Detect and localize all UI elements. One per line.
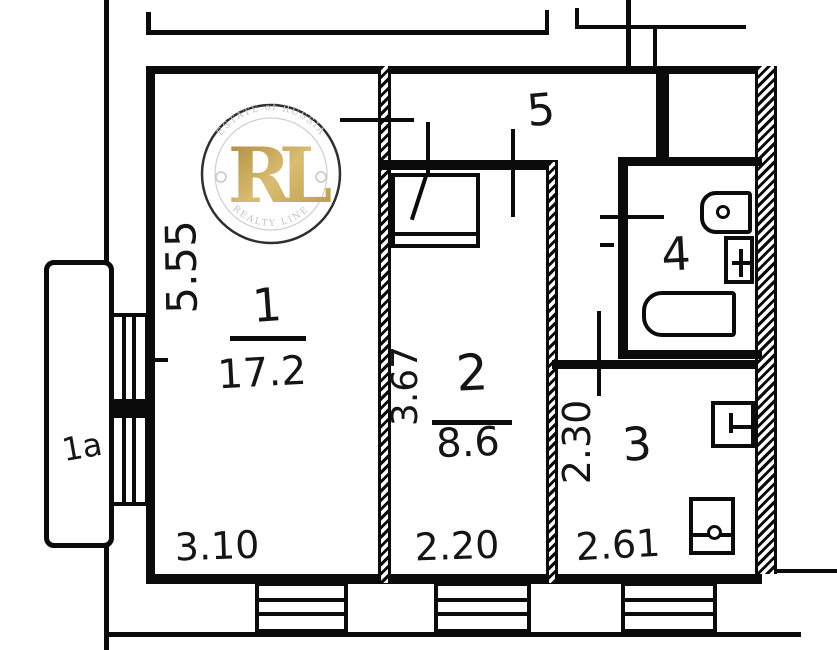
boundary-top-tick-right xyxy=(545,10,549,34)
window-glazing xyxy=(625,612,713,616)
room3-top-wall xyxy=(552,360,758,369)
watermark-monogram: RL xyxy=(228,131,331,220)
shaft-top-line xyxy=(575,25,746,29)
watermark-logo: ESTATE of RUSSIA REALTY LINE RL xyxy=(198,101,344,247)
window-glazing xyxy=(259,598,344,602)
window-glazing xyxy=(259,612,344,616)
room1-number: 1 xyxy=(251,281,283,329)
window-left-2 xyxy=(110,414,149,506)
stove-burner-icon xyxy=(729,413,733,433)
tick-bathroom-small xyxy=(600,243,614,247)
tick-corridor-entry xyxy=(340,118,414,122)
balcony-number: 1a xyxy=(60,428,105,466)
room2-top-wall xyxy=(378,160,558,170)
kitchen-sink xyxy=(689,497,735,555)
apartment-top-wall xyxy=(148,66,774,74)
tick-bathroom-door xyxy=(600,215,664,219)
bathroom-sink xyxy=(724,236,754,284)
room3-width-dim: 2.61 xyxy=(575,524,661,566)
window-bottom-3 xyxy=(621,582,717,633)
bathtub xyxy=(642,291,736,337)
window-left-1 xyxy=(110,313,149,403)
window-bottom-1 xyxy=(255,582,348,633)
window-glazing xyxy=(438,598,527,602)
window-glazing xyxy=(625,598,713,602)
window-glazing xyxy=(122,418,126,502)
room1-width-dim: 3.10 xyxy=(174,526,260,567)
bathroom-left-wall xyxy=(618,157,628,359)
room2-number: 2 xyxy=(455,347,489,399)
balcony-outline xyxy=(44,260,114,548)
room2-width-dim: 2.20 xyxy=(414,526,500,567)
bathroom-top-wall xyxy=(618,157,762,166)
room1-area: 17.2 xyxy=(216,351,307,396)
window-glazing xyxy=(438,612,527,616)
bathroom-bottom-wall xyxy=(618,350,762,359)
sink-cross-icon xyxy=(732,261,750,265)
boundary-top-tick-left xyxy=(146,12,151,34)
boundary-right-step-line xyxy=(774,569,837,573)
window-glazing xyxy=(132,418,136,502)
wall-room2-room3 xyxy=(546,162,558,583)
tick-room3-door xyxy=(597,311,601,396)
tick-room2-door-2 xyxy=(511,129,515,217)
floor-plan: 5.55 1 17.2 3.10 3.67 2 8.6 2.20 2.30 3 … xyxy=(0,0,837,650)
sink-drain-icon xyxy=(707,525,722,540)
corridor-number: 5 xyxy=(525,88,557,134)
stove xyxy=(711,401,755,448)
stove-burner-icon xyxy=(729,425,751,429)
window-glazing xyxy=(132,317,136,399)
room2-area: 8.6 xyxy=(436,422,501,464)
shaft-left-line xyxy=(626,0,631,70)
shaft-right-line xyxy=(653,25,657,70)
boundary-top-line xyxy=(146,30,549,35)
window-glazing xyxy=(122,317,126,399)
closet-inner-line xyxy=(395,232,476,236)
apartment-right-wall xyxy=(755,66,777,574)
window-bottom-2 xyxy=(434,582,531,633)
wall-corridor-bath xyxy=(656,70,669,165)
toilet xyxy=(700,191,752,234)
room3-depth-dim: 2.30 xyxy=(558,400,596,485)
room1-number-underline xyxy=(230,336,306,341)
room2-depth-dim: 3.67 xyxy=(388,346,424,426)
room3-number: 3 xyxy=(621,420,653,468)
wall-room1-room2 xyxy=(378,66,391,583)
bathroom-number: 4 xyxy=(660,230,692,277)
room2-closet xyxy=(391,173,480,248)
toilet-bowl-icon xyxy=(716,205,730,219)
